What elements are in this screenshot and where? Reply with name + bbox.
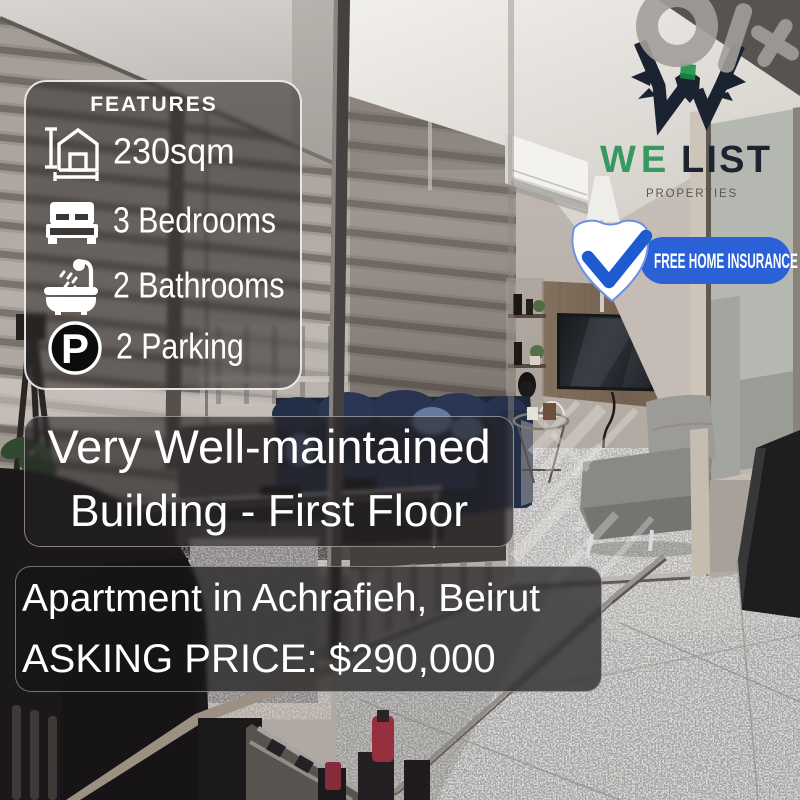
svg-text:WE: WE: [600, 139, 671, 181]
svg-text:FREE HOME INSURANCE: FREE HOME INSURANCE: [654, 248, 798, 273]
svg-text:LIST: LIST: [681, 139, 772, 181]
svg-text:PROPERTIES: PROPERTIES: [646, 188, 738, 200]
